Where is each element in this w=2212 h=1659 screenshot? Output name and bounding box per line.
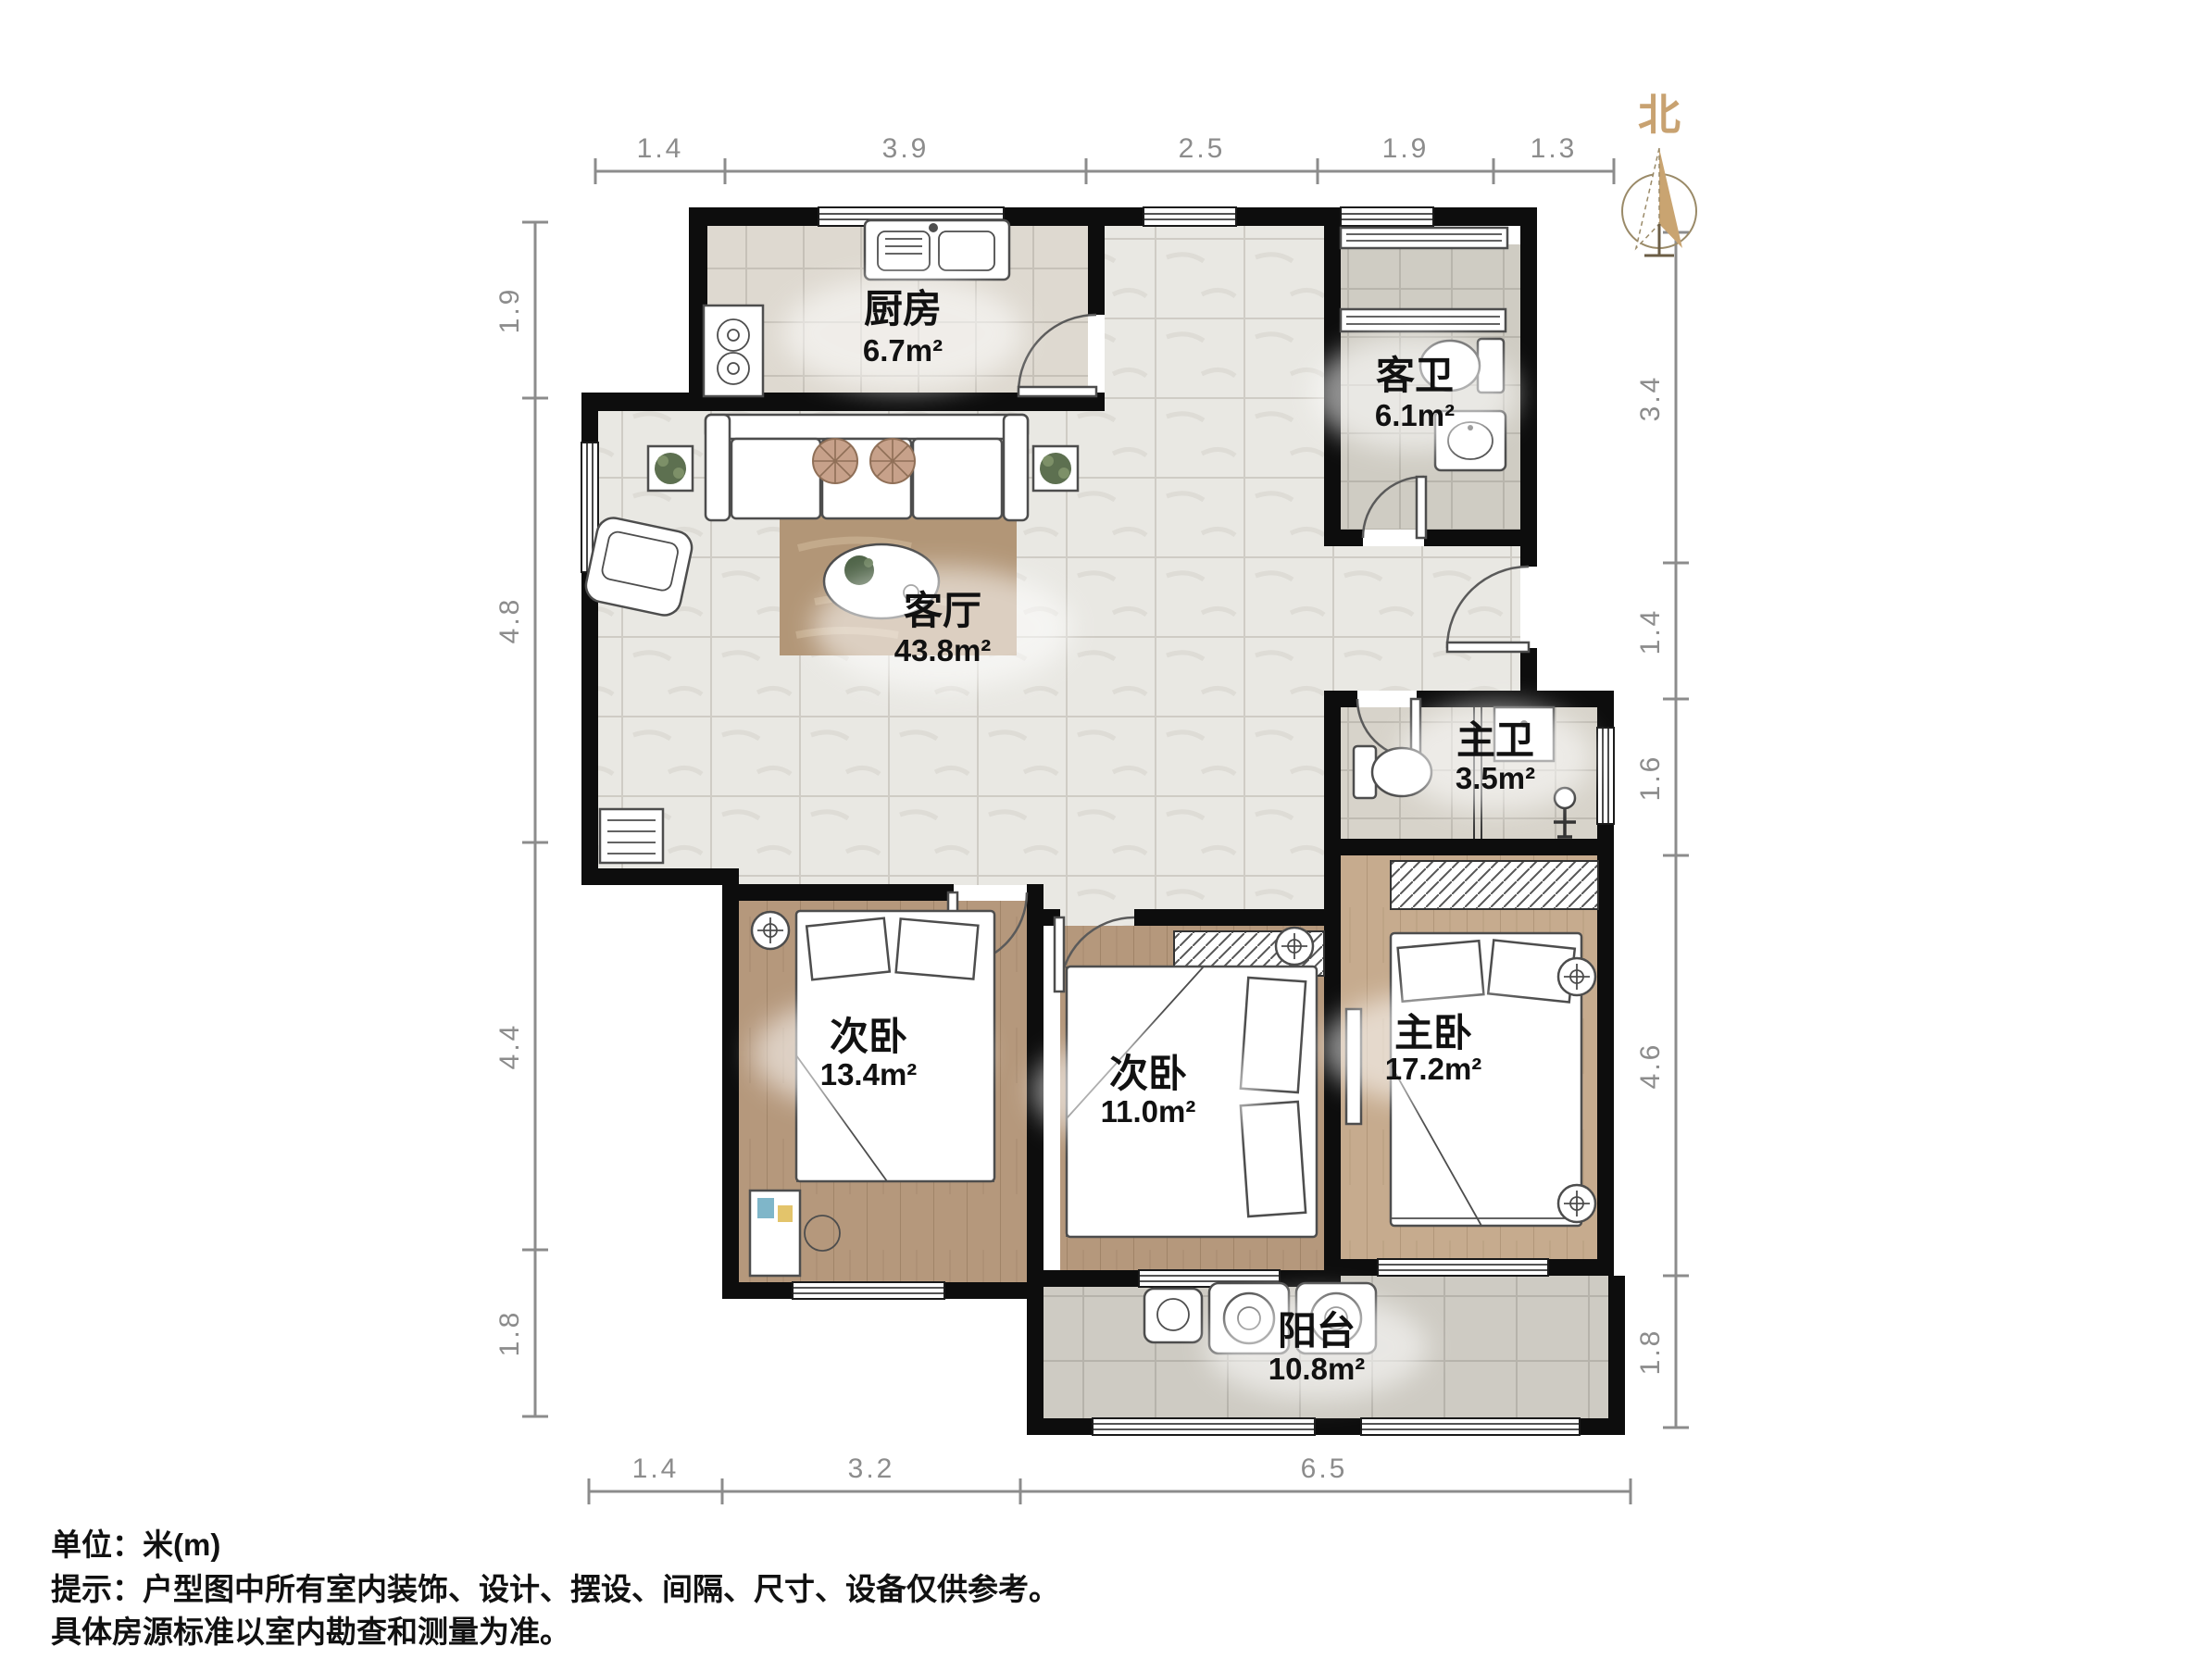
dimension-top: 1.4 3.9 2.5 1.9 1.3 [595,133,1614,184]
guest-bath-window [1341,207,1433,226]
middle-nightstand-plant [1276,928,1313,965]
footer-tip-line1: 提示：户型图中所有室内装饰、设计、摆设、间隔、尺寸、设备仅供参考。 [51,1572,1059,1606]
left-bedroom-window [793,1282,944,1299]
wall-balcony-bottom-a [1027,1418,1093,1435]
dimension-right: 3.4 1.4 1.6 4.6 1.8 [1635,232,1689,1428]
dim-right-3: 4.6 [1635,1042,1666,1090]
plant-stand-left [648,446,693,491]
footer-tip-line2: 具体房源标准以室内勘查和测量为准。 [51,1615,570,1649]
master-wardrobe [1391,861,1598,909]
wall-balcony-right [1608,1276,1625,1435]
room-area-kitchen: 6.7m² [863,333,943,368]
armchair [583,515,695,618]
wall-leftbedroom-bottom-b [944,1282,1044,1299]
wall-masterbath-top-a [1341,691,1357,707]
floorplan-drawing: 厨房 6.7m² 客卫 6.1m² 客厅 43.8m² 主卫 3.5m² 次卧 … [0,0,2212,1659]
entry-floor [1324,546,1520,691]
balcony-window-left [1093,1418,1315,1435]
dim-left-3: 1.8 [494,1310,525,1357]
kitchen-sink [865,220,1009,280]
wall-master-bottom-b [1548,1259,1614,1276]
dimension-bottom: 1.4 3.2 6.5 [589,1453,1631,1504]
wall-balcony-left [1027,1299,1044,1435]
plant-stand-right [1033,446,1078,491]
room-name-master: 主卧 [1394,1011,1472,1054]
dim-right-4: 1.8 [1635,1328,1666,1376]
master-bath-window [1597,728,1614,824]
dimension-left: 1.9 4.8 4.4 1.8 [494,222,548,1416]
wall-master-suite-left [1324,691,1341,1287]
wall-midbedroom-bottom-a [1044,1270,1139,1287]
wall-masterbath-bottom [1341,839,1597,855]
wall-balcony-bottom-b [1315,1418,1361,1435]
wall-living-bottom-left [581,868,739,885]
room-area-balcony: 10.8m² [1268,1352,1366,1386]
wall-master-bottom-a [1341,1259,1378,1276]
floorplan-page: 厨房 6.7m² 客卫 6.1m² 客厅 43.8m² 主卫 3.5m² 次卧 … [0,0,2212,1659]
hall-window [1143,207,1236,226]
room-name-kitchen: 厨房 [864,287,942,331]
footer-unit: 单位：米(m) [51,1528,220,1562]
compass-needle-west-icon [1636,148,1659,248]
dim-right-1: 1.4 [1635,608,1666,655]
north-label: 北 [1638,91,1681,139]
sofa [706,415,1028,520]
dim-right-0: 3.4 [1635,375,1666,422]
room-name-balcony: 阳台 [1278,1309,1356,1353]
wall-right-top [1520,226,1537,567]
wall-guestbath-bottom-b [1424,530,1537,546]
wall-step-stub [722,868,739,884]
room-name-bedroom2a: 次卧 [830,1015,907,1058]
dim-top-4: 1.3 [1531,133,1578,164]
master-nightstand-plant-bottom [1558,1185,1595,1222]
compass-needle-east-icon [1659,148,1682,248]
dim-top-1: 3.9 [882,133,930,164]
radiator [600,809,663,863]
room-area-bedroom2a: 13.4m² [820,1057,918,1091]
room-area-master: 17.2m² [1385,1052,1482,1086]
room-area-master-bath: 3.5m² [1456,761,1535,795]
dim-top-0: 1.4 [637,133,684,164]
hallway-floor [1105,226,1324,411]
dim-bottom-1: 3.2 [848,1453,895,1484]
north-compass: 北 [1622,91,1696,256]
room-name-living: 客厅 [904,589,981,632]
footer-notes: 单位：米(m) 提示：户型图中所有室内装饰、设计、摆设、间隔、尺寸、设备仅供参考… [51,1528,1059,1649]
dim-left-1: 4.8 [494,597,525,644]
master-nightstand-plant-top [1558,958,1595,995]
balcony-window-right [1361,1418,1580,1435]
dim-top-2: 2.5 [1179,133,1226,164]
left-nightstand-plant [752,912,789,949]
dim-right-2: 1.6 [1635,755,1666,802]
wall-leftbedroom-bottom-a [722,1282,793,1299]
stove [704,306,763,396]
dim-left-0: 1.9 [494,287,525,334]
wall-leftbedroom-left [722,884,739,1299]
dim-bottom-2: 6.5 [1301,1453,1348,1484]
balcony-sink [1144,1289,1202,1342]
wall-guestbath-bottom-a [1324,530,1363,546]
room-area-bedroom2b: 11.0m² [1101,1094,1196,1129]
wall-kitchen-right [1088,207,1105,315]
dim-left-2: 4.4 [494,1023,525,1070]
room-name-guest-bath: 客卫 [1376,354,1454,397]
dim-top-3: 1.9 [1382,133,1430,164]
wall-leftbedroom-top [722,884,954,901]
room-name-master-bath: 主卫 [1456,718,1534,762]
guest-bath-shower-screen [1341,309,1506,331]
guest-bath-counter [1341,228,1507,248]
master-balcony-door [1378,1259,1548,1276]
room-area-guest-bath: 6.1m² [1375,398,1455,432]
dim-bottom-0: 1.4 [632,1453,680,1484]
wall-midbedroom-top-b [1134,909,1341,926]
room-name-bedroom2b: 次卧 [1109,1052,1187,1095]
room-area-living: 43.8m² [894,633,992,667]
